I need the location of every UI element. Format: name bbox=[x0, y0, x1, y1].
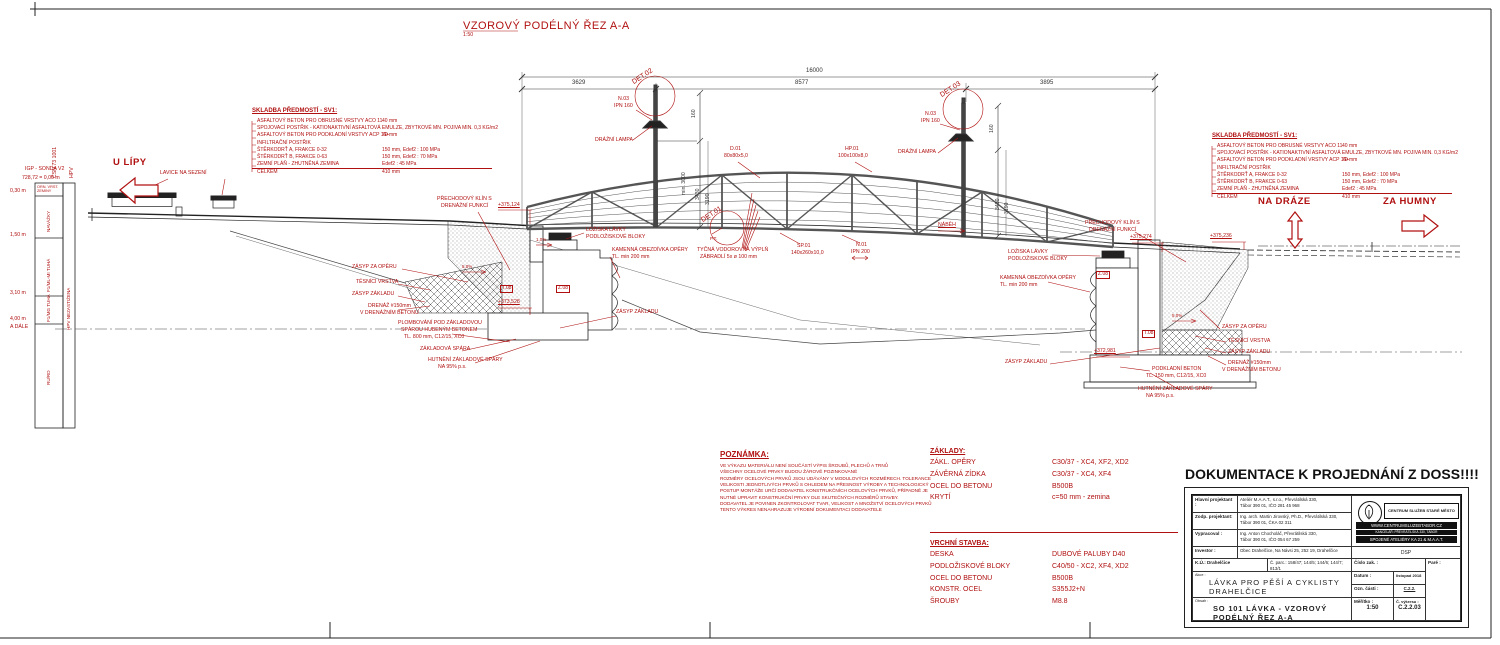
label-drenaz-right-2: V DRENÁŽNÍM BETONU bbox=[1222, 368, 1281, 374]
row-value: DUBOVÉ PALUBY D40 bbox=[1052, 551, 1125, 558]
pavement-value: 70 mm bbox=[382, 132, 397, 138]
stamp-obsah-cell: Obsah : SO 101 LÁVKA - VZOROVÝ PODÉLNÝ Ř… bbox=[1192, 597, 1352, 621]
dim-total: 16000 bbox=[806, 68, 823, 75]
label-drenaz-left-2: V DRENÁŽNÍM BETONU bbox=[360, 311, 419, 317]
label-klin-right-2: DRENÁŽNÍ FUNKCÍ bbox=[1089, 228, 1136, 234]
row-value: M8.8 bbox=[1052, 598, 1068, 605]
label-slope1: 1,0% bbox=[536, 237, 546, 242]
pavement-block-right: SKLADBA PŘEDMOSTÍ - SV1: ASFALTOVÝ BETON… bbox=[1212, 133, 1500, 202]
pavement-row: INFILTRAČNÍ POSTŘIK bbox=[1212, 165, 1500, 172]
elevation-left-base: +373,528 bbox=[498, 300, 520, 306]
label-drenaz-left-1: DRENÁŽ #150mm bbox=[368, 304, 411, 310]
label-lamp-post-right-1: N.03 bbox=[925, 112, 936, 118]
stamp-datum: listopad 2018 bbox=[1393, 571, 1426, 585]
u-lipy-arrow bbox=[120, 178, 158, 203]
dim-seg2: 8577 bbox=[795, 80, 808, 87]
pavement-label: SPOJOVACÍ POSTŘIK - KATIONAKTIVNÍ ASFALT… bbox=[257, 125, 498, 131]
notes-heading: POZNÁMKA: bbox=[720, 450, 932, 459]
pavement-row: ASFALTOVÝ BETON PRO PODKLADNÍ VRSTVY ACP… bbox=[252, 132, 552, 139]
label-drenaz-right-1: DRENÁŽ #150mm bbox=[1228, 361, 1271, 367]
label-loziska-right: LOŽISKA LÁVKY bbox=[1008, 250, 1048, 256]
stamp-value-line: Ing. Anton Chocholáč, Převrátilská 330, bbox=[1240, 531, 1317, 536]
pavement-label: CELKEM bbox=[257, 169, 278, 175]
pavement-label: ASFALTOVÝ BETON PRO PODKLADNÍ VRSTVY ACP… bbox=[1217, 157, 1349, 163]
label-obezdivka-left-2: TL. min 200 mm bbox=[612, 255, 649, 261]
row-value: S355J2+N bbox=[1052, 586, 1085, 593]
borehole-col1: ČSN 73 1001 bbox=[53, 147, 59, 178]
stamp-label: Vypracoval : bbox=[1192, 529, 1238, 547]
label-hutneni-right-1: HUTNĚNÍ ZÁKLADOVÉ SPÁRY bbox=[1138, 387, 1213, 393]
row-value: B500B bbox=[1052, 575, 1073, 582]
stamp-akce-1: LÁVKA PRO PĚŠÍ A CYKLISTY bbox=[1193, 578, 1351, 587]
pavement-row: ŠTĚRKODRŤ A, FRAKCE 0-32150 mm, Edef2 : … bbox=[252, 147, 552, 154]
row-label: OCEL DO BETONU bbox=[930, 483, 992, 490]
label-cross-beam-2: IPN 200 bbox=[851, 250, 870, 256]
label-podkladni-2: TL. 150 mm, C12/15, XC0 bbox=[1146, 374, 1206, 380]
logo-bar-1: WWW.CENTRUMSLUZEBTABOR.CZ bbox=[1356, 522, 1457, 529]
row-label: OCEL DO BETONU bbox=[930, 575, 992, 582]
pavement-label: ASFALTOVÝ BETON PRO OBRUSNÉ VRSTVY ACO 1… bbox=[257, 118, 382, 124]
table-row: KRYTÍc=50 mm - zemina bbox=[930, 494, 992, 506]
table-row: OCEL DO BETONUB500B bbox=[930, 483, 992, 495]
label-obezdivka-left-1: KAMENNÁ OBEZDÍVKA OPĚRY bbox=[612, 248, 688, 254]
row-label: ŠROUBY bbox=[930, 598, 960, 605]
borehole-layer-3: F1/MG TUHÁ bbox=[46, 294, 51, 322]
stamp-value-line: Ateliér M.A.A.T., s.r.o., Převrátilská 3… bbox=[1240, 497, 1317, 502]
stamp-value: Ateliér M.A.A.T., s.r.o., Převrátilská 3… bbox=[1237, 495, 1352, 513]
detail-code-t-right: T.08 bbox=[1142, 330, 1155, 338]
label-u-lipy: U LÍPY bbox=[113, 158, 147, 169]
label-cross-beam-1: N.01 bbox=[856, 243, 867, 249]
pavement-label: ŠTĚRKODRŤ A, FRAKCE 0-32 bbox=[257, 147, 327, 153]
foundations-table: ZÁKLADY: ZÁKL. OPĚRYC30/37 - XC4, XF2, X… bbox=[930, 448, 992, 506]
page-title: VZOROVÝ PODÉLNÝ ŘEZ A-A bbox=[463, 20, 630, 32]
borehole-note: HPV NEZASTIŽENA bbox=[66, 288, 71, 330]
stamp-pare: Paré : bbox=[1425, 558, 1461, 621]
notes-line: POSTUP MONTÁŽE URČÍ DODAVATEL KONSTRUKČN… bbox=[720, 488, 932, 494]
pavement-block-left: SKLADBA PŘEDMOSTÍ - SV1: ASFALTOVÝ BETON… bbox=[252, 108, 552, 177]
pavement-row: ZEMNÍ PLÁŇ - ZHUTNĚNÁ ZEMINAEdef2 : 45 M… bbox=[1212, 186, 1452, 194]
superstructure-heading: VRCHNÍ STAVBA: bbox=[930, 540, 1010, 547]
table-row: PODLOŽISKOVÉ BLOKYC40/50 - XC2, XF4, XD2 bbox=[930, 563, 1010, 575]
label-lavice: LAVICE NA SEZENÍ bbox=[160, 171, 207, 177]
pavement-value: Edef2 : 45 MPa bbox=[382, 161, 416, 167]
pavement-value: 150 mm, Edef2 : 100 MPa bbox=[382, 147, 440, 153]
elevation-left-top: +375,124 bbox=[498, 203, 520, 209]
leaf-icon bbox=[1359, 502, 1379, 522]
pavement-value: 150 mm, Edef2 : 100 MPa bbox=[1342, 172, 1400, 178]
label-zasyp-operu-left: ZÁSYP ZA OPĚRU bbox=[352, 265, 397, 271]
label-zasyp-zakladu-left-2: ZÁSYP ZÁKLADU bbox=[616, 310, 658, 316]
pavement-label: INFILTRAČNÍ POSTŘIK bbox=[257, 140, 311, 146]
stamp-meritko-cell: Měřítko : 1:50 bbox=[1351, 597, 1394, 621]
row-value: C30/37 - XC4, XF2, XD2 bbox=[1052, 459, 1129, 466]
table-row: ŠROUBYM8.8 bbox=[930, 598, 1010, 610]
label-hutneni-right-2: NA 95% p.s. bbox=[1146, 394, 1175, 400]
stamp-datum-label: Datum : bbox=[1351, 571, 1394, 585]
stamp-akce-2: DRAHELČICE bbox=[1193, 587, 1351, 596]
elevation-right-base: +372,981 bbox=[1094, 349, 1116, 355]
dim-3190-left: 3190 bbox=[706, 193, 712, 205]
label-top-chord-1: HP.01 bbox=[845, 147, 859, 153]
detail-code-z-right: Z.08 bbox=[1096, 271, 1110, 279]
label-klin-right-1: PŘECHODOVÝ KLÍN S bbox=[1085, 221, 1140, 227]
pavement-label: ZEMNÍ PLÁŇ - ZHUTNĚNÁ ZEMINA bbox=[1217, 186, 1299, 192]
label-plomba-1: PLOMBOVÁNÍ POD ZÁKLADOVOU bbox=[398, 321, 482, 327]
title-scale: 1:50 bbox=[463, 33, 473, 39]
dim-seg1: 3629 bbox=[572, 80, 585, 87]
pavement-value: 410 mm bbox=[382, 169, 400, 175]
label-klin-left-1: PŘECHODOVÝ KLÍN S bbox=[437, 197, 492, 203]
za-humny-arrow bbox=[1402, 215, 1438, 237]
label-railing-2: ZÁBRADLÍ 5x ø 100 mm bbox=[700, 255, 757, 261]
logo-bar-2: KANCELÁŘ: PŘEVRÁTILSKÁ 330, TÁBOR bbox=[1356, 530, 1457, 535]
label-zasyp-zakladu-right: ZÁSYP ZÁKLADU bbox=[1228, 350, 1270, 356]
foundations-heading: ZÁKLADY: bbox=[930, 448, 992, 455]
pavement-label: ŠTĚRKODRŤ B, FRAKCE 0-63 bbox=[1217, 179, 1287, 185]
label-lamp-left: DRÁŽNÍ LAMPA bbox=[595, 138, 633, 144]
stamp-ozn: C.2.2. bbox=[1393, 584, 1426, 598]
label-nabeh: NÁBĚH bbox=[938, 223, 956, 229]
notes-block: POZNÁMKA: VE VÝKAZU MATERIÁLU NENÍ SOUČÁ… bbox=[720, 450, 932, 514]
pavement-row: ZEMNÍ PLÁŇ - ZHUTNĚNÁ ZEMINAEdef2 : 45 M… bbox=[252, 161, 492, 169]
dim-min3000: min. 3000 bbox=[682, 172, 688, 195]
elevation-right-back: +375,274 bbox=[1130, 235, 1152, 241]
table-row: KONSTR. OCELS355J2+N bbox=[930, 586, 1010, 598]
stamp-value-line: Obec Drahelčice, Na Návsi 25, 252 19, Dr… bbox=[1240, 548, 1338, 553]
dim-160-left: 160 bbox=[692, 109, 698, 118]
table-row: ZÁVĚRNÁ ZÍDKAC30/37 - XC4, XF4 bbox=[930, 471, 992, 483]
row-label: KRYTÍ bbox=[930, 494, 951, 501]
pavement-label: ŠTĚRKODRŤ B, FRAKCE 0-63 bbox=[257, 154, 327, 160]
borehole-depth-2: 3,10 m bbox=[10, 291, 26, 297]
borehole-depth-3: 4,00 m bbox=[10, 317, 26, 323]
row-label: PODLOŽISKOVÉ BLOKY bbox=[930, 563, 1010, 570]
stamp-obsah-1: SO 101 LÁVKA - VZOROVÝ bbox=[1193, 604, 1351, 613]
pavement-value: 70 mm bbox=[1342, 157, 1357, 163]
label-slope5-left: 5,0% bbox=[462, 264, 472, 269]
stamp-value: Ing. Anton Chocholáč, Převrátilská 330,T… bbox=[1237, 529, 1352, 547]
pavement-row: INFILTRAČNÍ POSTŘIK bbox=[252, 140, 552, 147]
stamp-cislo-zak: Číslo zak. : bbox=[1351, 558, 1426, 572]
stamp-value-line: Tábor 390 01, IČO 281 45 968 bbox=[1240, 503, 1300, 508]
row-label: ZÁKL. OPĚRY bbox=[930, 459, 976, 466]
label-bloky-left: PODLOŽISKOVÉ BLOKY bbox=[586, 235, 645, 241]
label-pt: P.T. bbox=[710, 236, 717, 241]
pavement-value: Edef2 : 45 MPa bbox=[1342, 186, 1376, 192]
logo-title: CENTRUM SLUŽEB STARÉ MĚSTO bbox=[1384, 503, 1459, 519]
row-label: ZÁVĚRNÁ ZÍDKA bbox=[930, 471, 986, 478]
stamp-value-line: Tábor 390 01, IČO 054 67 259 bbox=[1240, 537, 1300, 542]
label-tesnici-left: TĚSNÍCÍ VRSTVA bbox=[356, 280, 398, 286]
drawing-sheet: VZOROVÝ PODÉLNÝ ŘEZ A-A 1:50 U LÍPY NA D… bbox=[0, 0, 1500, 645]
borehole-layer-2: F1/ML-MI TUHÁ bbox=[46, 259, 51, 292]
pavement-row: ŠTĚRKODRŤ A, FRAKCE 0-32150 mm, Edef2 : … bbox=[1212, 172, 1500, 179]
dim-160-right: 160 bbox=[990, 124, 996, 133]
label-hutneni-left-2: NA 95% p.s. bbox=[438, 365, 467, 371]
label-obezdivka-right-2: TL. min 200 mm bbox=[1000, 283, 1037, 289]
superstructure-table: VRCHNÍ STAVBA: DESKADUBOVÉ PALUBY D40 PO… bbox=[930, 540, 1010, 610]
label-bottom-chord-2: 140x260x10,0 bbox=[791, 251, 824, 257]
stamp-vykres-cell: Č. výkresu : C.2.2.03 bbox=[1393, 597, 1426, 621]
pavement-row: CELKEM410 mm bbox=[1212, 194, 1500, 201]
label-zasyp-operu-right: ZÁSYP ZA OPĚRU bbox=[1222, 325, 1267, 331]
pavement-label: ŠTĚRKODRŤ A, FRAKCE 0-32 bbox=[1217, 172, 1287, 178]
pavement-label: SPOJOVACÍ POSTŘIK - KATIONAKTIVNÍ ASFALT… bbox=[1217, 150, 1458, 156]
table-divider bbox=[930, 532, 1178, 533]
pavement-value: 410 mm bbox=[1342, 194, 1360, 200]
stamp-vykres-label: Č. výkresu : bbox=[1394, 598, 1425, 605]
pavement-value: 150 mm, Edef2 : 70 MPa bbox=[382, 154, 437, 160]
stamp-vykres: C.2.2.03 bbox=[1394, 605, 1425, 611]
stamp-akce-cell: Akce : LÁVKA PRO PĚŠÍ A CYKLISTY DRAHELČ… bbox=[1192, 571, 1352, 598]
pavement-value: 40 mm bbox=[382, 118, 397, 124]
stamp-obsah-2: PODÉLNÝ ŘEZ A-A bbox=[1193, 613, 1351, 621]
borehole-depth-1: 1,50 m bbox=[10, 233, 26, 239]
label-zasyp-zakladu-left: ZÁSYP ZÁKLADU bbox=[352, 292, 394, 298]
pavement-label: ASFALTOVÝ BETON PRO PODKLADNÍ VRSTVY ACP… bbox=[257, 132, 389, 138]
stamp-logo-cell: CENTRUM SLUŽEB STARÉ MĚSTO WWW.CENTRUMSL… bbox=[1351, 495, 1461, 547]
label-top-chord-2: 100x100x8,0 bbox=[838, 154, 868, 160]
title-block: Hlavní projektant : Ateliér M.A.A.T., s.… bbox=[1184, 487, 1469, 628]
label-spara: ZÁKLADOVÁ SPÁRA bbox=[420, 347, 470, 353]
label-podkladni-1: PODKLADNÍ BETON bbox=[1152, 367, 1201, 373]
title-block-inner: Hlavní projektant : Ateliér M.A.A.T., s.… bbox=[1191, 494, 1462, 622]
borehole-layer-4: RU/RD bbox=[46, 370, 51, 385]
pavement-label: ASFALTOVÝ BETON PRO OBRUSNÉ VRSTVY ACO 1… bbox=[1217, 143, 1342, 149]
row-value: C30/37 - XC4, XF4 bbox=[1052, 471, 1111, 478]
label-loziska-left: LOŽISKA LÁVKY bbox=[586, 228, 626, 234]
label-railing-1: TYČNÁ VODOROVNÁ VÝPLŇ bbox=[697, 248, 768, 254]
stamp-ku: K.Ú.: Drahelčice bbox=[1192, 558, 1268, 572]
table-row: OCEL DO BETONUB500B bbox=[930, 575, 1010, 587]
pavement-row: ASFALTOVÝ BETON PRO PODKLADNÍ VRSTVY ACP… bbox=[1212, 157, 1500, 164]
stamp-meritko: 1:50 bbox=[1352, 605, 1393, 611]
label-diagonal-1: D.01 bbox=[730, 147, 741, 153]
stamp-value-line: Tábor 390 01, ČKA 02 311 bbox=[1240, 520, 1292, 525]
label-diagonal-2: 80x80x5,0 bbox=[724, 154, 748, 160]
stamp-value: Ing. arch. Martin Jirovský, Ph.D., Převr… bbox=[1237, 512, 1352, 530]
label-bloky-right: PODLOŽISKOVÉ BLOKY bbox=[1008, 257, 1067, 263]
stamp-meritko-label: Měřítko : bbox=[1352, 598, 1393, 605]
pavement-value: 150 mm, Edef2 : 70 MPa bbox=[1342, 179, 1397, 185]
borehole-depth-3b: A DÁLE bbox=[10, 325, 28, 331]
dim-3430-right: 3430 bbox=[996, 198, 1002, 210]
label-plomba-3: TL. 800 mm, C12/15, XC0 bbox=[404, 335, 464, 341]
row-value: B500B bbox=[1052, 483, 1073, 490]
row-value: C40/50 - XC2, XF4, XD2 bbox=[1052, 563, 1129, 570]
dim-seg3: 3895 bbox=[1040, 80, 1053, 87]
detail-code-t-left: T.08 bbox=[500, 285, 513, 293]
row-label: KONSTR. OCEL bbox=[930, 586, 982, 593]
pavement-heading: SKLADBA PŘEDMOSTÍ - SV1: bbox=[1212, 133, 1500, 139]
pavement-label: CELKEM bbox=[1217, 194, 1238, 200]
table-row: DESKADUBOVÉ PALUBY D40 bbox=[930, 551, 1010, 563]
red-annotation-lines bbox=[140, 31, 1246, 390]
label-bottom-chord-1: SP.01 bbox=[797, 244, 810, 250]
dim-3430-left: 3430 bbox=[696, 188, 702, 200]
pavement-row: CELKEM410 mm bbox=[252, 169, 552, 176]
pavement-label: INFILTRAČNÍ POSTŘIK bbox=[1217, 165, 1271, 171]
borehole-layer-1: NAVÁŽKY bbox=[46, 211, 51, 232]
label-lamp-post-right-2: IPN 160 bbox=[921, 119, 940, 125]
stamp-parcels: Č. parc.: 158/47; 144/5; 144/6; 144/7; 8… bbox=[1267, 558, 1352, 572]
stamp-ozn-label: Ozn. části : bbox=[1351, 584, 1394, 598]
elevation-right-top: +375,236 bbox=[1210, 234, 1232, 240]
notes-line: TENTO VÝKRES NENAHRAZUJE VÝROBNÍ DOKUMEN… bbox=[720, 507, 932, 513]
pavement-label: ZEMNÍ PLÁŇ - ZHUTNĚNÁ ZEMINA bbox=[257, 161, 339, 167]
row-label: DESKA bbox=[930, 551, 954, 558]
stamp-value-line: Ing. arch. Martin Jirovský, Ph.D., Převr… bbox=[1240, 514, 1337, 519]
label-plomba-2: SPÁROU HUBENÝM BETONEM bbox=[401, 328, 477, 334]
borehole-col2: HPV bbox=[70, 167, 76, 178]
detail-code-z-left: Z.08 bbox=[556, 285, 570, 293]
label-lamp-right: DRÁŽNÍ LAMPA bbox=[898, 150, 936, 156]
label-hutneni-left-1: HUTNĚNÍ ZÁKLADOVÉ SPÁRY bbox=[428, 358, 503, 364]
table-row: ZÁKL. OPĚRYC30/37 - XC4, XF2, XD2 bbox=[930, 459, 992, 471]
label-tesnici-right: TĚSNÍCÍ VRSTVA bbox=[1228, 339, 1270, 345]
label-lamp-post-left-2: IPN 160 bbox=[614, 104, 633, 110]
label-slope5-right: 5,0% bbox=[1172, 313, 1182, 318]
logo-bar-3: SPOJENÉ ATELIÉRY KA 21 & M.A.A.T. bbox=[1356, 536, 1457, 543]
doss-banner: DOKUMENTACE K PROJEDNÁNÍ Z DOSS!!!! bbox=[1185, 466, 1479, 482]
pavement-value: 40 mm bbox=[1342, 143, 1357, 149]
na-draze-arrow bbox=[1288, 212, 1302, 248]
lamp-masts bbox=[643, 85, 973, 237]
dim-3190-right: 3190 bbox=[1005, 202, 1011, 214]
label-lamp-post-left-1: N.03 bbox=[618, 97, 629, 103]
label-obezdivka-right-1: KAMENNÁ OBEZDÍVKA OPĚRY bbox=[1000, 276, 1076, 282]
stamp-label: Zodp. projektant: bbox=[1192, 512, 1238, 530]
borehole-depth-0: 0,30 m bbox=[10, 189, 26, 195]
stamp-label: Hlavní projektant : bbox=[1192, 495, 1238, 513]
row-value: c=50 mm - zemina bbox=[1052, 494, 1110, 501]
pavement-heading: SKLADBA PŘEDMOSTÍ - SV1: bbox=[252, 108, 552, 114]
borehole-layer-0: ORN. VRST. ZEMINY bbox=[37, 185, 62, 193]
label-klin-left-2: DRENÁŽNÍ FUNKCÍ bbox=[441, 204, 488, 210]
label-zasyp-zakladu-center: ZÁSYP ZÁKLADU bbox=[1005, 360, 1047, 366]
